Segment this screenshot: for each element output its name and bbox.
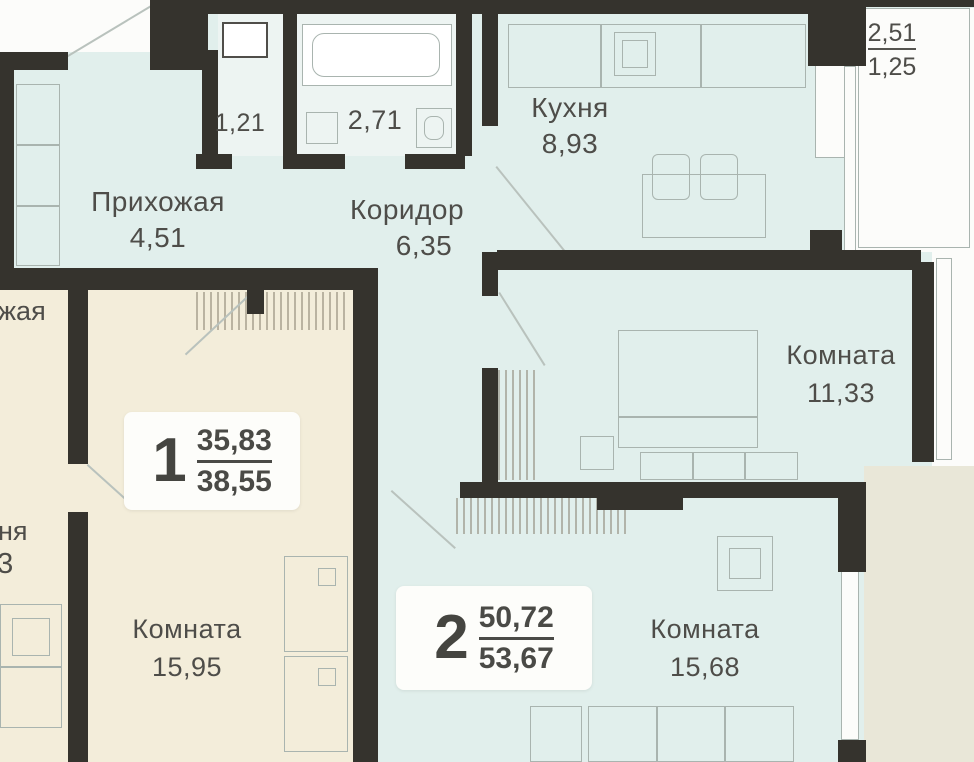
shelving-unit-handle [318,668,336,686]
wardrobe-hatch-corridor [498,370,536,480]
wall-left [0,52,14,290]
room-right-label: Комната 11,33 [756,336,926,412]
door-swing-line [391,490,456,549]
counter-divider [1,666,61,668]
apartment-2-total-area: 53,67 [479,640,554,678]
room-right-name: Комната [786,340,895,370]
wc-area: 1,21 [215,109,266,137]
dresser-divider [692,452,694,480]
closet-shelf-line [17,205,59,207]
wall-apartment1-interior [68,290,88,464]
wall-wc-bottom [283,154,345,169]
kitchen-label: Кухня 8,93 [502,90,638,162]
toilet-inner [424,116,444,140]
nightstand [580,436,614,470]
wall-top [150,0,866,14]
kitchen-name: Кухня [531,92,608,123]
room-window [936,258,952,460]
floor-plan: 1 35,83 38,55 2 50,72 53,67 Прихожая 4,5… [0,0,974,762]
apartment-1-living-area: 35,83 [197,422,272,464]
wall-apartment1-interior [68,512,88,762]
hall-closet [16,84,60,266]
kitchen-sink-inner [622,40,648,68]
side-table-inner [729,548,761,579]
wall-bath-right [456,14,472,156]
outside-area-bottom-right [864,466,974,762]
partial-number-bottom: 23 [0,548,13,581]
wall-wc-bath-divider [283,14,297,156]
dresser-bottom [588,706,794,762]
corridor-name: Коридор [350,194,464,225]
wall-right-block [838,740,866,762]
dresser-divider [724,706,726,762]
wall-apartment-divider-vertical [353,268,378,762]
wc-label: 1,21 [208,108,272,138]
wall-apartment-divider-horizontal [0,268,378,290]
corridor-label: Коридор 6,35 [322,192,492,264]
wall-step [597,497,683,510]
shelving-unit-handle [318,568,336,586]
balcony-label: 2,51 1,25 [854,16,930,84]
door-swing-line [495,166,566,253]
kitchen-area: 8,93 [502,126,638,162]
counter-divider [600,25,602,87]
wall-door-jamb [247,290,264,314]
corridor-area: 6,35 [322,228,492,264]
bathroom-area: 2,71 [348,105,403,135]
washing-machine [222,22,268,58]
apartment-1-card[interactable]: 1 35,83 38,55 [124,412,300,510]
kitchen-window [844,66,856,252]
hallway-area: 4,51 [58,220,258,256]
shelving-unit [284,656,348,752]
counter-divider [700,25,702,87]
bathtub-inner [312,33,440,77]
wall-top-right-thin [866,0,974,7]
wall-wc-bottom [196,154,232,169]
chair [700,154,738,200]
balcony-area-lower: 1,25 [868,53,917,81]
kitchen-counter [508,24,806,88]
room-apartment2-area: 15,68 [616,648,794,686]
cabinet [530,706,582,762]
wall-balcony-stub [810,230,842,252]
wall-main-horizontal [460,482,864,498]
counter-sink-apartment1 [12,618,50,656]
dresser [640,452,798,480]
wall-kitchen-left-lower [482,368,498,494]
wall-kitchen-left-upper [482,14,498,126]
apartment-2-number: 2 [434,607,468,669]
balcony-area-upper: 2,51 [868,19,917,50]
bed [618,330,758,448]
wall-room-right-top [497,250,921,270]
outside-area-top-left [0,0,150,52]
bed-line [619,416,757,418]
room-apartment2-label: Комната 15,68 [616,610,794,686]
door-swing-line [498,292,545,366]
bathroom-label: 2,71 [336,102,414,138]
room-apartment1-name: Комната [132,614,241,644]
shelving-unit [284,556,348,652]
room-apartment2-name: Комната [650,614,759,644]
wall-wc-left [202,50,218,162]
wall-right-block [838,482,866,572]
apartment-1-total-area: 38,55 [197,463,272,501]
hallway-name: Прихожая [91,186,225,217]
room-apartment1-area: 15,95 [98,648,276,686]
chair [652,154,690,200]
partial-label-top: жая [0,296,46,327]
room-apartment1-label: Комната 15,95 [98,610,276,686]
apartment-2-card[interactable]: 2 50,72 53,67 [396,586,592,690]
room-right-area: 11,33 [756,374,926,412]
apartment-2-living-area: 50,72 [479,599,554,641]
dresser-divider [656,706,658,762]
wall-corner-block [150,0,208,70]
partial-label-bottom: ня [0,516,28,547]
bottom-right-window [841,570,859,740]
dresser-divider [744,452,746,480]
wall-wc-bottom [405,154,465,169]
hallway-label: Прихожая 4,51 [58,184,258,256]
sink [306,112,338,144]
closet-shelf-line [17,144,59,146]
apartment-1-number: 1 [152,430,186,492]
